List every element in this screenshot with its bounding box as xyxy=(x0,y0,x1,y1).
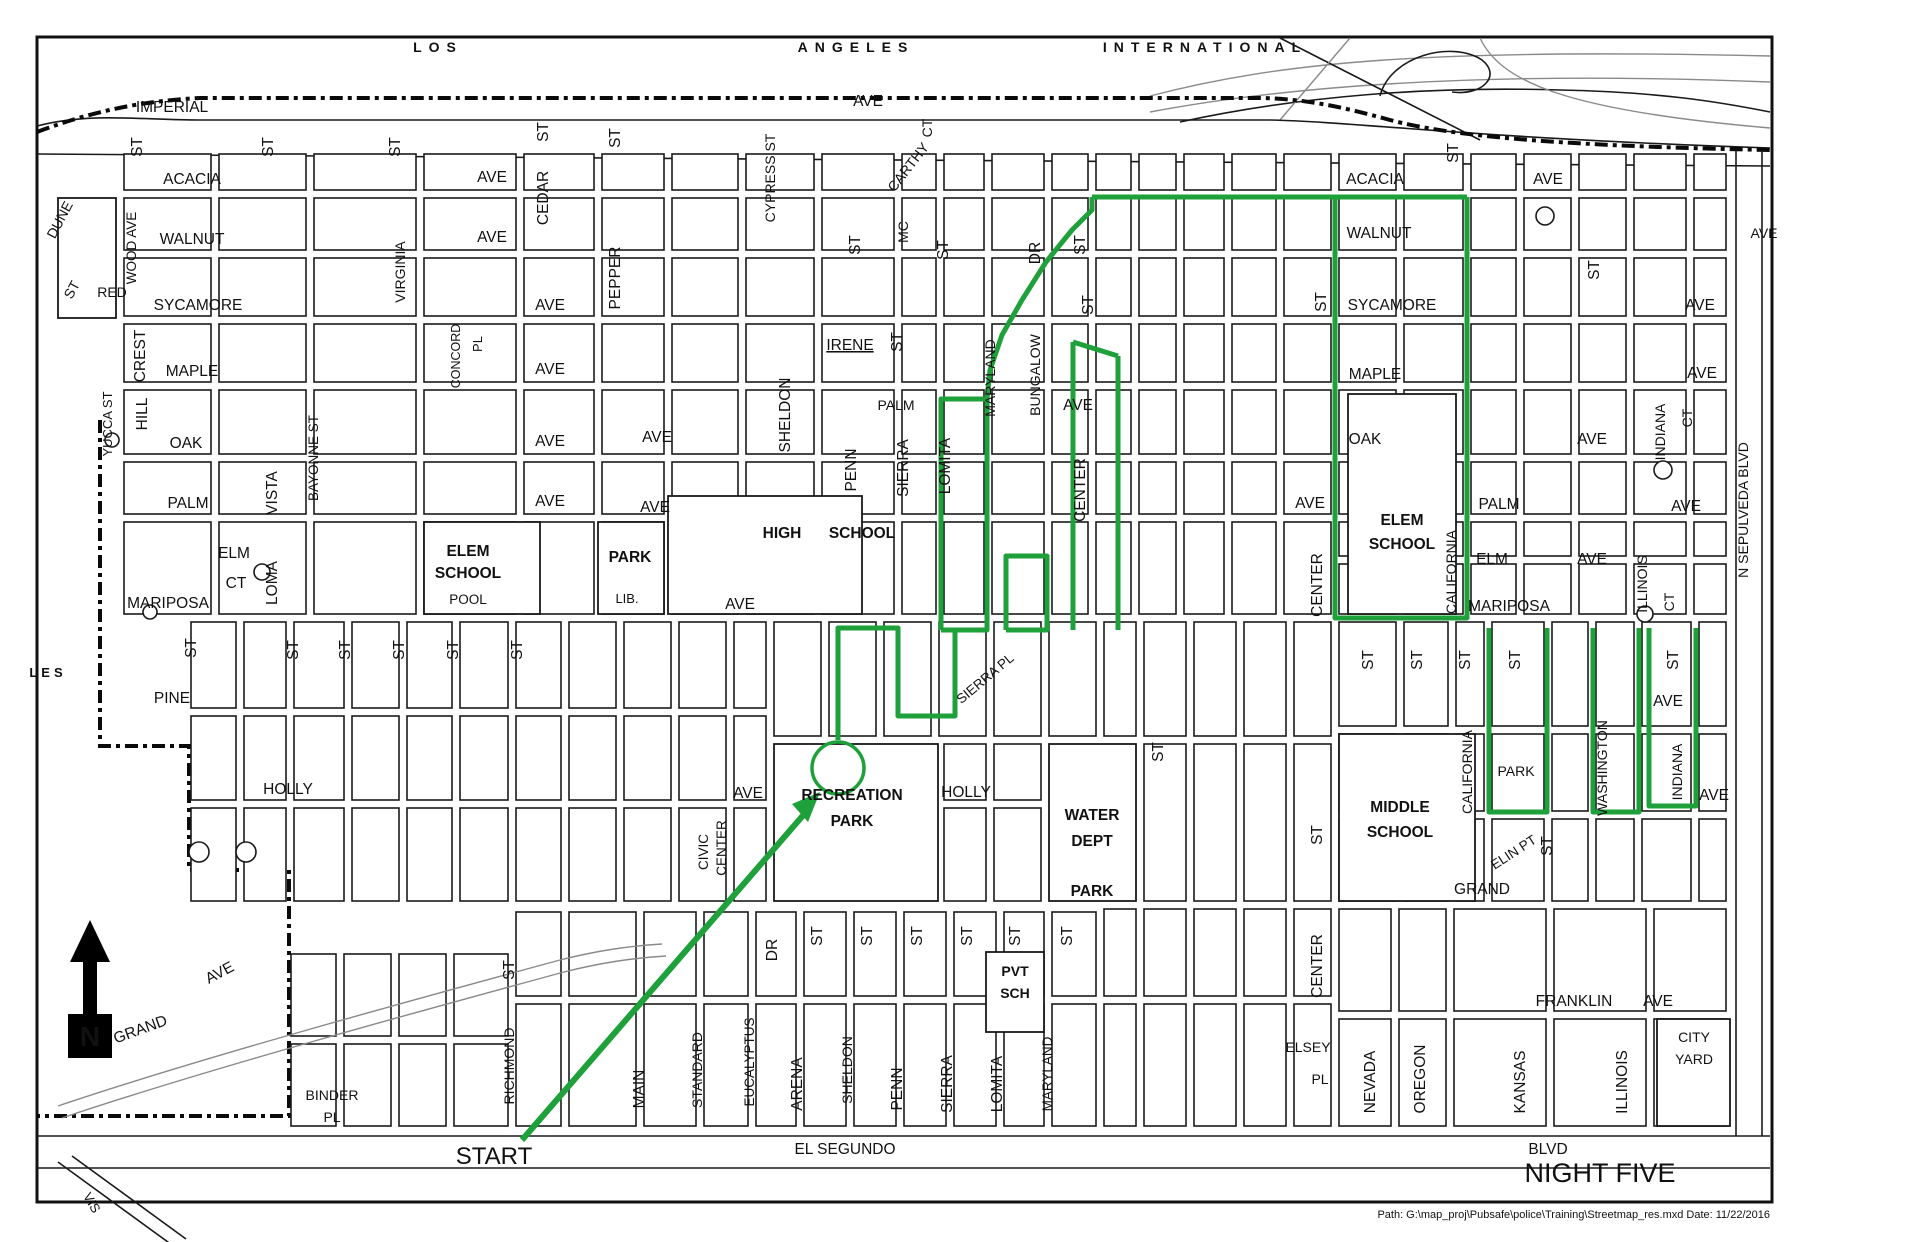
start-label: START xyxy=(456,1143,533,1170)
city-block xyxy=(804,912,846,996)
city-block xyxy=(1139,198,1176,250)
street-label: ST xyxy=(387,137,404,157)
airport-title-los: LOS xyxy=(413,39,463,55)
street-label: MC xyxy=(895,221,911,243)
city-block xyxy=(1232,462,1276,514)
street-label: CONCORD xyxy=(449,324,463,389)
city-block xyxy=(1634,522,1686,556)
street-label: ST xyxy=(1309,825,1326,845)
city-block xyxy=(602,154,664,190)
city-block xyxy=(1139,522,1176,614)
city-block xyxy=(1524,324,1571,382)
street-label: PEPPER xyxy=(607,247,624,310)
street-label: ST xyxy=(935,240,952,260)
city-block xyxy=(854,912,896,996)
city-block xyxy=(1049,622,1096,736)
city-block xyxy=(1454,1019,1546,1126)
street-label: ST xyxy=(535,122,552,142)
street-label: SCHOOL xyxy=(829,525,895,542)
street-label: ST xyxy=(260,137,277,157)
street-label: VIRGINIA xyxy=(392,241,408,303)
street-label: PALM xyxy=(167,495,208,512)
street-label: BAYONNE ST xyxy=(306,415,321,501)
city-block xyxy=(1471,324,1516,382)
city-block xyxy=(1471,198,1516,250)
street-label: AVE xyxy=(1643,993,1673,1010)
street-label: ST xyxy=(509,640,526,660)
street-label: AVE xyxy=(535,297,565,314)
street-label: AVE xyxy=(477,229,507,246)
city-block xyxy=(352,716,399,800)
city-block xyxy=(679,716,726,800)
city-block xyxy=(672,324,738,382)
city-block xyxy=(1232,198,1276,250)
city-block xyxy=(1284,198,1331,250)
street-label: MARYLAND xyxy=(1040,1036,1055,1111)
street-label: ST xyxy=(1072,235,1089,255)
street-label: IMPERIAL xyxy=(136,99,209,116)
city-block xyxy=(944,258,984,316)
city-block xyxy=(1284,324,1331,382)
street-label: ACACIA xyxy=(1346,171,1404,188)
street-label: CENTER xyxy=(1309,934,1326,998)
street-label: CALIFORNIA xyxy=(1443,529,1459,614)
city-block xyxy=(399,954,446,1036)
street-label: EUCALYPTUS xyxy=(742,1017,757,1106)
city-block xyxy=(1052,912,1096,996)
city-block xyxy=(1144,909,1186,996)
city-block xyxy=(219,390,306,454)
city-block xyxy=(1139,154,1176,190)
city-block xyxy=(944,324,984,382)
city-block xyxy=(1694,154,1726,190)
city-block xyxy=(1096,522,1131,614)
street-label: KANSAS xyxy=(1512,1051,1529,1114)
city-block xyxy=(1232,522,1276,614)
street-label: EL SEGUNDO xyxy=(794,1141,895,1158)
street-label: STANDARD xyxy=(689,1032,705,1108)
city-block xyxy=(1492,622,1544,726)
street-label: NEVADA xyxy=(1362,1050,1379,1113)
city-block xyxy=(424,462,516,514)
street-label: ELM xyxy=(1476,551,1508,568)
street-label: ST xyxy=(809,926,826,946)
city-block xyxy=(992,462,1044,514)
street-label: ELSEY xyxy=(1285,1039,1331,1055)
city-block xyxy=(734,622,766,708)
street-label: ST xyxy=(183,638,200,658)
street-label: HIGH xyxy=(763,525,802,542)
street-label: ST xyxy=(1313,292,1330,312)
map-stage: LOSANGELESINTERNATIONALIMPERIALAVEACACIA… xyxy=(0,0,1920,1242)
city-block xyxy=(994,622,1041,736)
city-block xyxy=(352,622,399,708)
street-label: AVE xyxy=(1295,495,1325,512)
street-label: LOMITA xyxy=(989,1055,1006,1112)
night-five-label: NIGHT FIVE xyxy=(1524,1158,1675,1188)
street-label: ST xyxy=(1007,926,1024,946)
city-block xyxy=(1139,324,1176,382)
city-block xyxy=(1139,258,1176,316)
city-block xyxy=(944,522,984,614)
street-label: PARK xyxy=(1497,763,1535,779)
city-block xyxy=(344,1044,391,1126)
city-block xyxy=(399,1044,446,1126)
city-block xyxy=(822,258,894,316)
city-block xyxy=(1184,522,1224,614)
street-label: AVE xyxy=(1685,297,1715,314)
city-block xyxy=(624,716,671,800)
city-block xyxy=(569,716,616,800)
street-label: LOMITA xyxy=(937,437,954,494)
city-block xyxy=(424,390,516,454)
street-label: ST xyxy=(1507,650,1524,670)
street-label: WALNUT xyxy=(160,231,225,248)
middle-school-block xyxy=(1339,734,1475,901)
street-label: ST xyxy=(1150,742,1167,762)
street-label: AVE xyxy=(1577,431,1607,448)
footer-text: Path: G:\map_proj\Pubsafe\police\Trainin… xyxy=(1377,1209,1770,1221)
city-block xyxy=(1339,622,1396,726)
city-block xyxy=(1104,622,1136,736)
street-label: AVE xyxy=(1577,551,1607,568)
city-block xyxy=(1404,622,1448,726)
city-block xyxy=(1184,462,1224,514)
street-label: ST xyxy=(1457,650,1474,670)
street-label: ELEM xyxy=(446,543,489,560)
street-label: CIVIC xyxy=(696,834,711,870)
city-block xyxy=(1194,909,1236,996)
city-block xyxy=(1456,622,1484,726)
street-label: BINDER xyxy=(306,1087,359,1103)
street-label: HOLLY xyxy=(941,784,991,801)
airport-title-international: INTERNATIONAL xyxy=(1103,39,1307,55)
street-label: PENN xyxy=(889,1067,906,1110)
city-block xyxy=(1052,522,1088,614)
city-block xyxy=(314,154,416,190)
city-block xyxy=(569,912,636,996)
street-label: ST xyxy=(391,640,408,660)
city-block xyxy=(1139,390,1176,454)
city-block xyxy=(1184,324,1224,382)
city-block xyxy=(1096,462,1131,514)
street-label: ST xyxy=(1665,650,1682,670)
city-block xyxy=(569,622,616,708)
street-label: DEPT xyxy=(1071,833,1113,850)
city-block xyxy=(1524,258,1571,316)
street-label: CT xyxy=(1679,408,1695,427)
city-block xyxy=(994,808,1041,901)
street-label: AVE xyxy=(1533,171,1563,188)
city-block xyxy=(902,522,936,614)
city-block xyxy=(516,808,561,901)
street-label: ARENA xyxy=(789,1057,806,1111)
street-label: SCH xyxy=(1000,985,1030,1001)
city-block xyxy=(624,808,671,901)
street-label: ELEM xyxy=(1380,512,1423,529)
city-block xyxy=(1634,258,1686,316)
street-label: ST xyxy=(909,926,926,946)
city-block xyxy=(904,912,946,996)
street-label: AVE xyxy=(1699,787,1729,804)
city-block xyxy=(1404,324,1463,382)
street-label: PL xyxy=(470,336,485,352)
city-block xyxy=(352,808,399,901)
city-block xyxy=(902,258,936,316)
city-block xyxy=(1052,324,1088,382)
street-label: AVE xyxy=(535,433,565,450)
street-label: CT xyxy=(1661,592,1677,611)
city-block xyxy=(314,462,416,514)
city-block xyxy=(1579,154,1626,190)
city-block xyxy=(219,154,306,190)
city-block xyxy=(1524,462,1571,514)
street-label: PARK xyxy=(1071,883,1115,900)
street-label: GRAND xyxy=(1454,881,1510,898)
city-block xyxy=(1524,390,1571,454)
street-label: CREST xyxy=(132,329,149,382)
street-label: AVE xyxy=(1687,365,1717,382)
city-block xyxy=(672,198,738,250)
street-label: SCHOOL xyxy=(1369,536,1435,553)
street-label: ILLINOIS xyxy=(1634,555,1650,613)
street-label: AVE xyxy=(853,93,883,110)
city-block xyxy=(516,622,561,708)
street-label: CITY xyxy=(1678,1029,1711,1045)
street-label: MIDDLE xyxy=(1370,799,1429,816)
city-block xyxy=(569,808,616,901)
street-label: SYCAMORE xyxy=(154,297,243,314)
street-label: ST xyxy=(501,960,518,980)
city-block xyxy=(1096,154,1131,190)
city-block xyxy=(191,716,236,800)
street-label: HILL xyxy=(134,397,151,430)
street-label: SCHOOL xyxy=(1367,824,1433,841)
street-label: PALM xyxy=(877,397,914,413)
street-label: WALNUT xyxy=(1347,225,1412,242)
city-block xyxy=(1694,522,1726,556)
street-label: PALM xyxy=(1478,496,1519,513)
city-block xyxy=(992,154,1044,190)
city-block xyxy=(1184,390,1224,454)
street-label: AVE xyxy=(477,169,507,186)
city-block xyxy=(1404,198,1463,250)
street-label: INDIANA xyxy=(1652,403,1668,460)
city-block xyxy=(1552,622,1588,726)
street-label: CT xyxy=(919,118,935,137)
street-label: ILLINOIS xyxy=(1614,1050,1631,1114)
city-block xyxy=(1104,1004,1136,1126)
street-label: MARIPOSA xyxy=(1468,598,1550,615)
city-block xyxy=(314,522,416,614)
city-block xyxy=(407,622,452,708)
street-label: ST xyxy=(1080,295,1097,315)
street-label: DR xyxy=(1027,242,1044,264)
city-block xyxy=(774,622,821,736)
street-label: PENN xyxy=(843,448,860,491)
city-block xyxy=(1244,744,1286,901)
street-label: ST xyxy=(959,926,976,946)
city-block xyxy=(602,324,664,382)
city-block xyxy=(1194,744,1236,901)
city-block xyxy=(746,154,814,190)
street-label: AVE xyxy=(640,499,670,516)
city-block xyxy=(1642,819,1691,901)
street-label: VISTA xyxy=(264,471,281,515)
city-block xyxy=(672,390,738,454)
city-block xyxy=(344,954,391,1036)
street-label: RED xyxy=(97,284,127,300)
street-label: CENTER xyxy=(714,820,729,876)
street-label: CENTER xyxy=(1309,553,1326,617)
street-label: YARD xyxy=(1675,1051,1713,1067)
street-label: AVE xyxy=(1751,225,1778,241)
city-block xyxy=(1634,154,1686,190)
elem-school-east-block xyxy=(1348,394,1456,614)
city-block xyxy=(1454,909,1546,1011)
city-block xyxy=(1144,622,1186,736)
city-block xyxy=(1052,1004,1096,1126)
street-label: MAPLE xyxy=(166,363,219,380)
street-label: OAK xyxy=(170,435,203,452)
city-block xyxy=(624,622,671,708)
street-label: AVE xyxy=(733,785,763,802)
street-label: MARYLAND xyxy=(982,339,998,417)
street-label: AVE xyxy=(725,596,755,613)
city-block xyxy=(1471,390,1516,454)
street-label: ACACIA xyxy=(163,171,221,188)
street-label: LES xyxy=(29,665,66,680)
city-block xyxy=(1634,198,1686,250)
airport-title-angeles: ANGELES xyxy=(798,39,915,55)
city-block xyxy=(1194,622,1236,736)
north-arrow-letter: N xyxy=(80,1021,100,1052)
street-label: ST xyxy=(129,137,146,157)
city-block xyxy=(672,258,738,316)
city-block xyxy=(314,390,416,454)
city-block xyxy=(454,1044,508,1126)
city-block xyxy=(1232,258,1276,316)
city-block xyxy=(1596,819,1634,901)
street-label: WASHINGTON xyxy=(1594,720,1610,816)
street-label: ST xyxy=(847,235,864,255)
city-block xyxy=(314,324,416,382)
city-block xyxy=(602,198,664,250)
street-label: PL xyxy=(1311,1071,1328,1087)
high-school-block xyxy=(668,496,862,614)
city-block xyxy=(407,716,452,800)
street-label: PARK xyxy=(831,813,875,830)
street-label: YUCCA ST xyxy=(100,391,115,456)
street-label: LOMA xyxy=(264,560,281,605)
city-block xyxy=(1184,258,1224,316)
city-block xyxy=(644,912,696,996)
street-label: AVE xyxy=(1653,693,1683,710)
city-block xyxy=(424,324,516,382)
street-label: AVE xyxy=(535,361,565,378)
street-label: MAPLE xyxy=(1349,366,1402,383)
street-label: CYPRESS ST xyxy=(762,133,778,222)
street-label: PINE xyxy=(154,690,190,707)
city-block xyxy=(1294,744,1331,901)
city-block xyxy=(1579,462,1626,514)
street-label: LIB. xyxy=(615,591,638,606)
city-block xyxy=(516,1004,561,1126)
city-block xyxy=(1096,198,1131,250)
street-label: DR xyxy=(764,939,781,961)
street-label: OAK xyxy=(1349,431,1382,448)
street-label: POOL xyxy=(449,592,487,607)
street-label: ST xyxy=(1539,836,1556,856)
city-block xyxy=(884,622,931,736)
city-block xyxy=(994,744,1041,800)
city-block xyxy=(1634,324,1686,382)
city-block xyxy=(1579,324,1626,382)
street-label: SHELDON xyxy=(777,378,794,453)
street-label: ST xyxy=(285,640,302,660)
street-label: SHELDON xyxy=(839,1036,855,1104)
city-block xyxy=(1232,154,1276,190)
street-label: SYCAMORE xyxy=(1348,297,1437,314)
city-block xyxy=(460,716,508,800)
street-label: FRANKLIN xyxy=(1536,993,1613,1010)
city-block xyxy=(944,808,986,901)
city-block xyxy=(1579,198,1626,250)
street-label: BLVD xyxy=(1528,1141,1567,1158)
street-label: ST xyxy=(1586,260,1603,280)
street-label: AVE xyxy=(1063,397,1093,414)
city-block xyxy=(244,622,286,708)
street-label: ST xyxy=(607,128,624,148)
city-block xyxy=(219,462,306,514)
street-label: AVE xyxy=(1671,498,1701,515)
city-block xyxy=(516,716,561,800)
street-label: MAIN xyxy=(631,1070,648,1109)
street-label: ST xyxy=(1409,650,1426,670)
city-block xyxy=(294,808,344,901)
street-label: AVE xyxy=(535,493,565,510)
street-label: SIERRA xyxy=(939,1054,956,1112)
street-label: ELM xyxy=(218,545,250,562)
street-label: ST xyxy=(337,640,354,660)
city-block xyxy=(746,324,814,382)
city-block xyxy=(1524,522,1571,556)
city-block xyxy=(1294,622,1331,736)
city-block xyxy=(1139,462,1176,514)
street-label: PARK xyxy=(609,549,653,566)
street-label: ST xyxy=(445,640,462,660)
city-block xyxy=(992,522,1044,614)
city-block xyxy=(1194,1004,1236,1126)
city-block xyxy=(1284,390,1331,454)
city-block xyxy=(902,324,936,382)
city-block xyxy=(1554,1019,1646,1126)
city-block xyxy=(1284,154,1331,190)
city-block xyxy=(1096,390,1131,454)
city-block xyxy=(1244,909,1286,996)
street-label: ST xyxy=(859,926,876,946)
city-block xyxy=(672,154,738,190)
city-block xyxy=(1596,622,1634,726)
city-block xyxy=(191,622,236,708)
street-label: CEDAR xyxy=(535,171,552,225)
street-label: CT xyxy=(226,575,247,592)
street-label: OREGON xyxy=(1412,1045,1429,1114)
street-label: ST xyxy=(889,332,906,352)
city-block xyxy=(1471,154,1516,190)
street-label: MARIPOSA xyxy=(127,595,209,612)
city-block xyxy=(460,808,508,901)
